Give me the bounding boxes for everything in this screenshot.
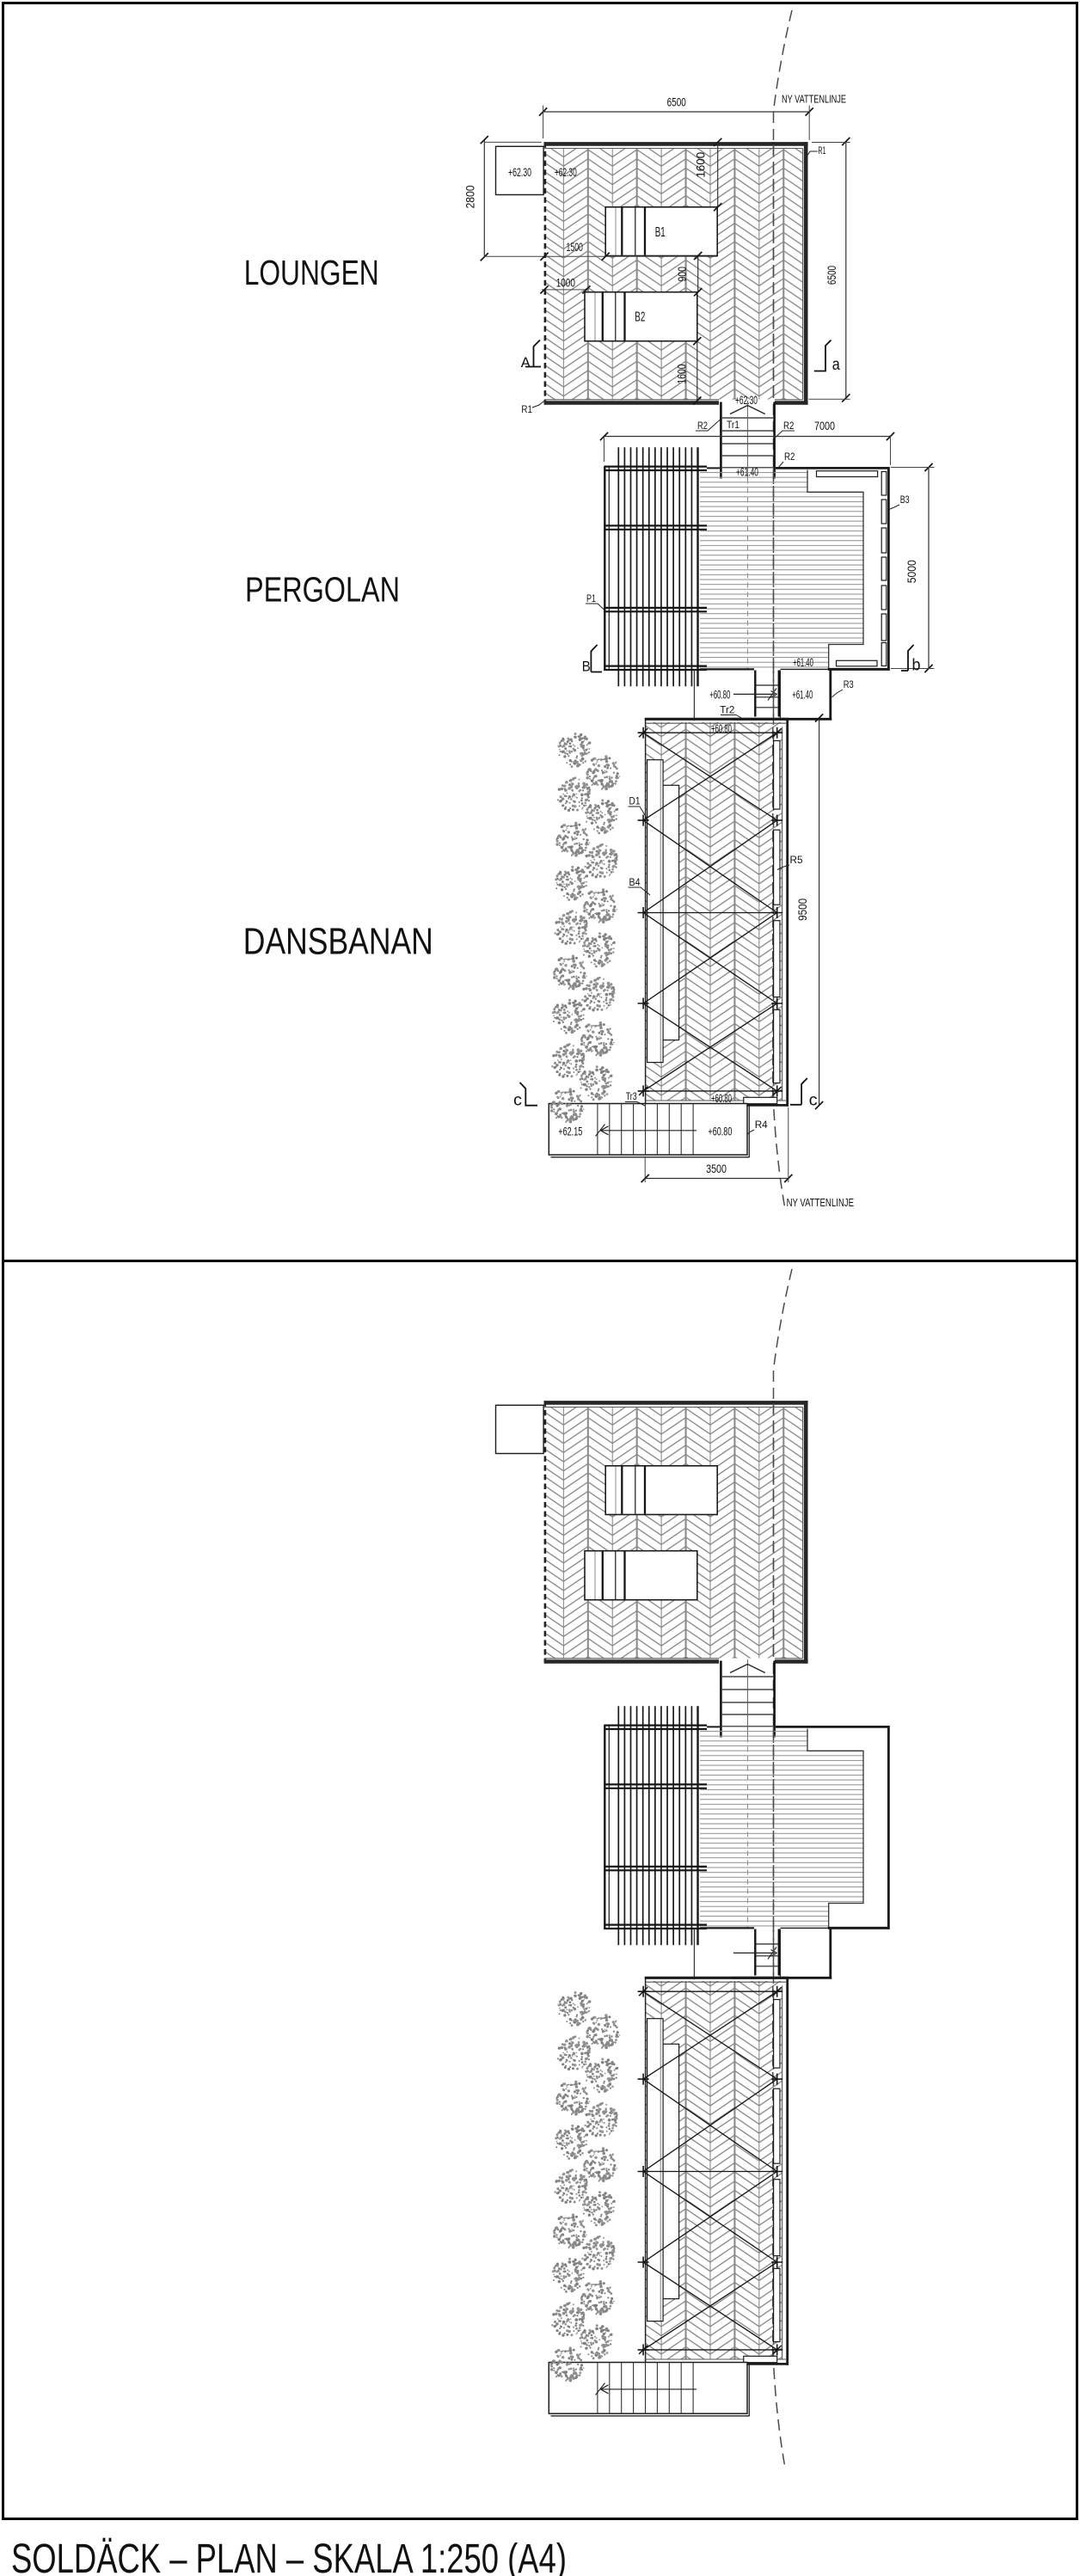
svg-text:+60.80: +60.80 — [708, 1125, 732, 1138]
svg-text:SOLDÄCK – PLAN – SKALA 1:250 (: SOLDÄCK – PLAN – SKALA 1:250 (A4) — [11, 2536, 567, 2576]
svg-text:5000: 5000 — [905, 560, 918, 583]
svg-text:+61.40: +61.40 — [736, 466, 758, 479]
svg-text:+61.40: +61.40 — [793, 656, 813, 669]
svg-text:R2: R2 — [784, 451, 795, 463]
svg-text:DANSBANAN: DANSBANAN — [243, 921, 433, 962]
svg-text:1600: 1600 — [694, 152, 708, 178]
svg-text:c: c — [513, 1092, 522, 1110]
svg-text:6500: 6500 — [825, 266, 838, 285]
svg-text:A: A — [521, 354, 531, 371]
svg-text:NY VATTENLINJE: NY VATTENLINJE — [787, 1197, 854, 1209]
svg-text:R1: R1 — [818, 146, 825, 156]
svg-text:NY VATTENLINJE: NY VATTENLINJE — [782, 94, 846, 106]
svg-text:Tr2: Tr2 — [720, 704, 734, 716]
svg-text:B2: B2 — [635, 310, 645, 324]
svg-text:+62.30: +62.30 — [508, 165, 531, 179]
svg-text:3500: 3500 — [706, 1162, 727, 1175]
svg-text:B4: B4 — [629, 876, 641, 888]
svg-text:P1: P1 — [586, 592, 596, 604]
svg-text:Tr1: Tr1 — [727, 419, 739, 431]
svg-text:R1: R1 — [521, 405, 532, 415]
svg-text:6500: 6500 — [667, 95, 686, 108]
svg-text:+61.40: +61.40 — [792, 689, 813, 702]
svg-text:Tr3: Tr3 — [626, 1090, 637, 1102]
svg-text:c: c — [809, 1092, 818, 1110]
svg-text:R2: R2 — [783, 420, 795, 432]
svg-text:D1: D1 — [629, 795, 641, 807]
svg-text:+60.80: +60.80 — [711, 722, 732, 735]
svg-text:LOUNGEN: LOUNGEN — [244, 253, 379, 292]
svg-text:B: B — [582, 659, 591, 675]
svg-text:1500: 1500 — [567, 240, 584, 254]
svg-text:+60.80: +60.80 — [711, 1092, 732, 1105]
svg-text:R2: R2 — [697, 420, 708, 432]
svg-text:2800: 2800 — [463, 185, 477, 208]
svg-text:+62.30: +62.30 — [555, 165, 577, 179]
svg-text:+62.15: +62.15 — [558, 1125, 582, 1138]
svg-text:a: a — [832, 356, 840, 374]
svg-text:b: b — [912, 657, 921, 675]
svg-text:B3: B3 — [900, 494, 910, 506]
svg-text:1000: 1000 — [556, 276, 575, 290]
svg-text:+60.80: +60.80 — [709, 689, 730, 702]
svg-text:PERGOLAN: PERGOLAN — [245, 570, 400, 610]
svg-text:+62.30: +62.30 — [735, 394, 758, 407]
svg-text:9500: 9500 — [795, 899, 809, 921]
svg-text:1600: 1600 — [675, 364, 689, 383]
svg-text:R3: R3 — [844, 678, 854, 690]
svg-text:900: 900 — [675, 267, 689, 282]
svg-text:7000: 7000 — [814, 419, 835, 432]
svg-text:R4: R4 — [755, 1119, 768, 1131]
svg-text:R5: R5 — [790, 854, 803, 866]
svg-text:B1: B1 — [655, 225, 666, 240]
